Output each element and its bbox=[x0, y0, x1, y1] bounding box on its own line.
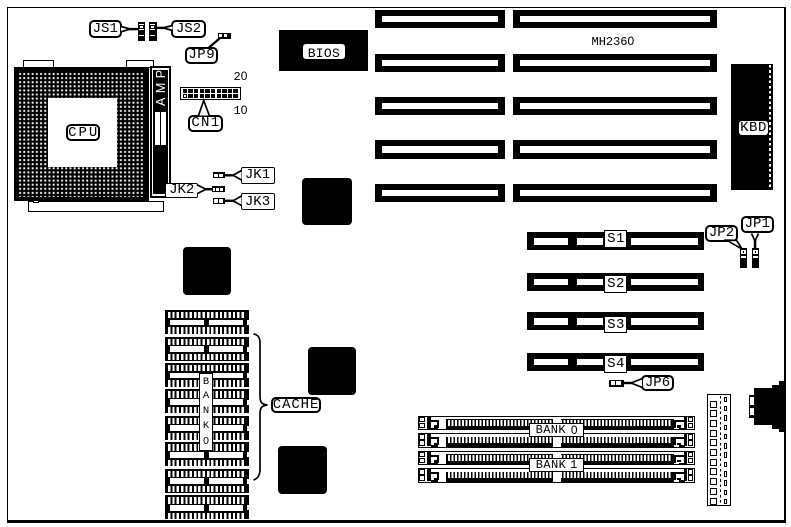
svg-text:AMP: AMP bbox=[153, 66, 167, 106]
